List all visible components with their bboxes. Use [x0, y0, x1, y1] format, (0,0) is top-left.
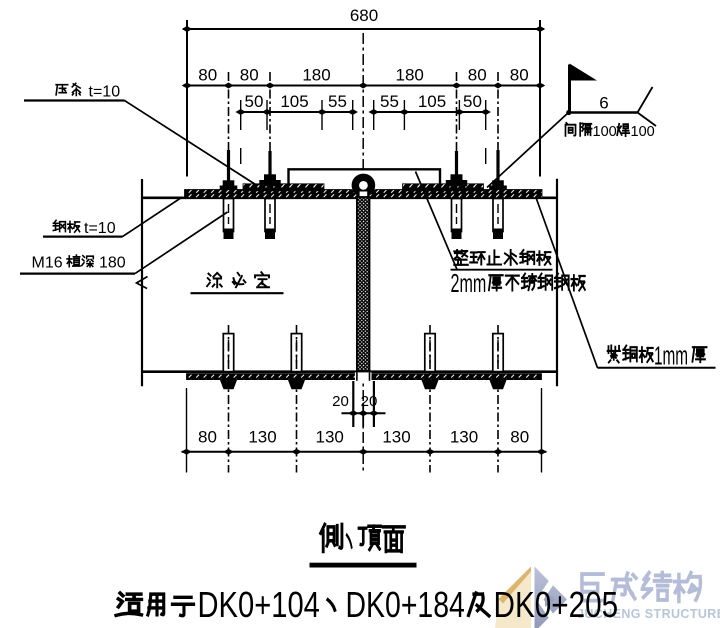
svg-text:55: 55 — [380, 92, 399, 111]
svg-text:1mm: 1mm — [654, 341, 688, 370]
svg-text:55: 55 — [328, 92, 347, 111]
svg-text:JUCHENG STRUCTURE: JUCHENG STRUCTURE — [577, 607, 720, 621]
svg-text:t=10: t=10 — [84, 220, 116, 237]
svg-text:80: 80 — [468, 66, 487, 85]
svg-text:105: 105 — [280, 92, 308, 111]
svg-text:680: 680 — [350, 6, 378, 25]
svg-text:DK0+104: DK0+104 — [198, 584, 320, 625]
svg-text:100: 100 — [593, 124, 617, 140]
svg-text:50: 50 — [245, 92, 264, 111]
svg-text:6: 6 — [599, 94, 608, 113]
svg-text:180: 180 — [396, 66, 424, 85]
svg-text:80: 80 — [198, 428, 217, 447]
svg-text:DK0+184: DK0+184 — [346, 585, 465, 625]
svg-text:80: 80 — [198, 66, 217, 85]
svg-text:130: 130 — [450, 428, 478, 447]
svg-text:20: 20 — [361, 393, 378, 410]
svg-text:80: 80 — [510, 66, 529, 85]
svg-text:180: 180 — [99, 255, 126, 272]
svg-text:50: 50 — [463, 92, 482, 111]
svg-text:M16: M16 — [32, 255, 63, 272]
svg-text:80: 80 — [240, 66, 259, 85]
svg-text:130: 130 — [248, 428, 276, 447]
svg-text:100: 100 — [631, 124, 655, 140]
svg-text:130: 130 — [316, 428, 344, 447]
svg-text:105: 105 — [418, 92, 446, 111]
svg-text:130: 130 — [382, 428, 410, 447]
svg-text:t=10: t=10 — [89, 84, 121, 101]
svg-text:180: 180 — [302, 66, 330, 85]
svg-text:20: 20 — [332, 393, 349, 410]
svg-text:80: 80 — [510, 428, 529, 447]
svg-text:2mm: 2mm — [451, 268, 487, 298]
